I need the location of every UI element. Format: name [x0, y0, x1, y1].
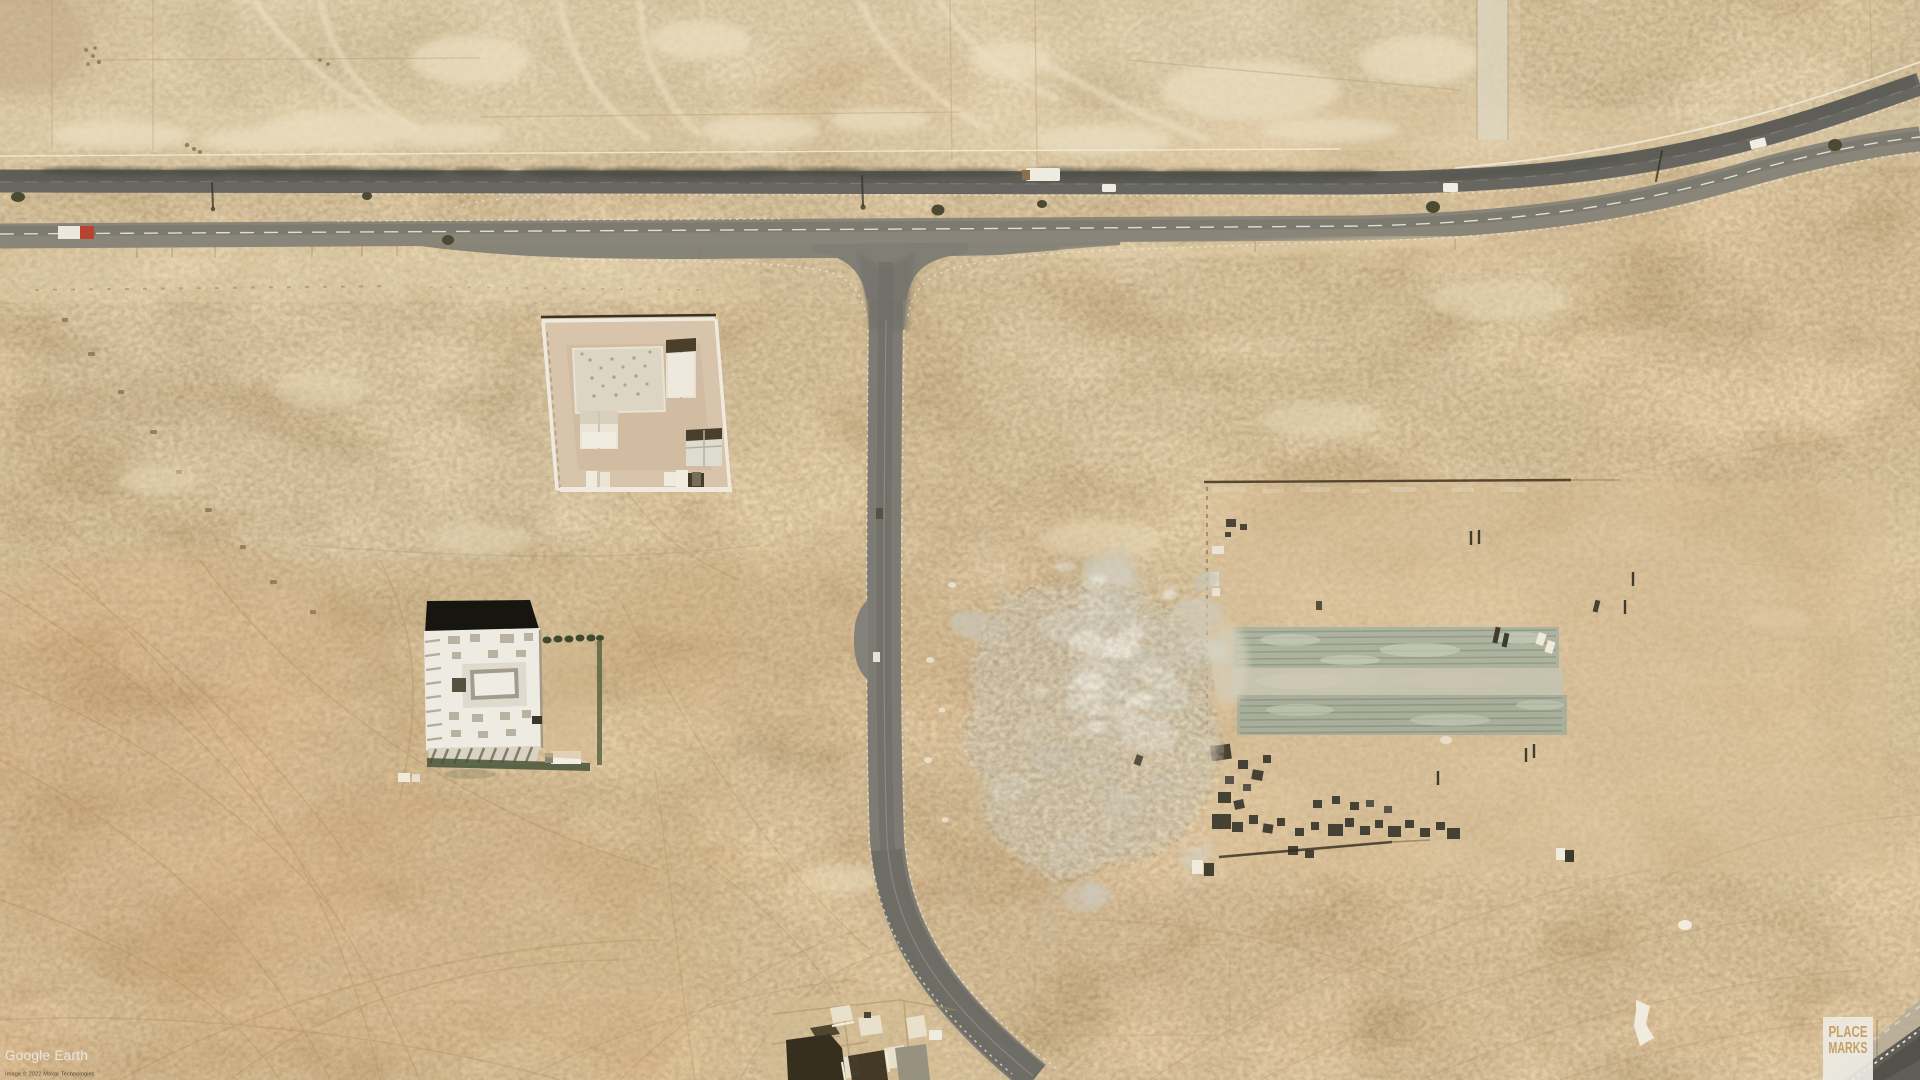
svg-text:PLACE: PLACE	[1829, 1024, 1868, 1041]
svg-text:MARKS: MARKS	[1829, 1040, 1868, 1057]
svg-text:Image © 2022 Maxar Technologie: Image © 2022 Maxar Technologies	[5, 1071, 95, 1078]
svg-text:Google Earth: Google Earth	[5, 1048, 88, 1063]
